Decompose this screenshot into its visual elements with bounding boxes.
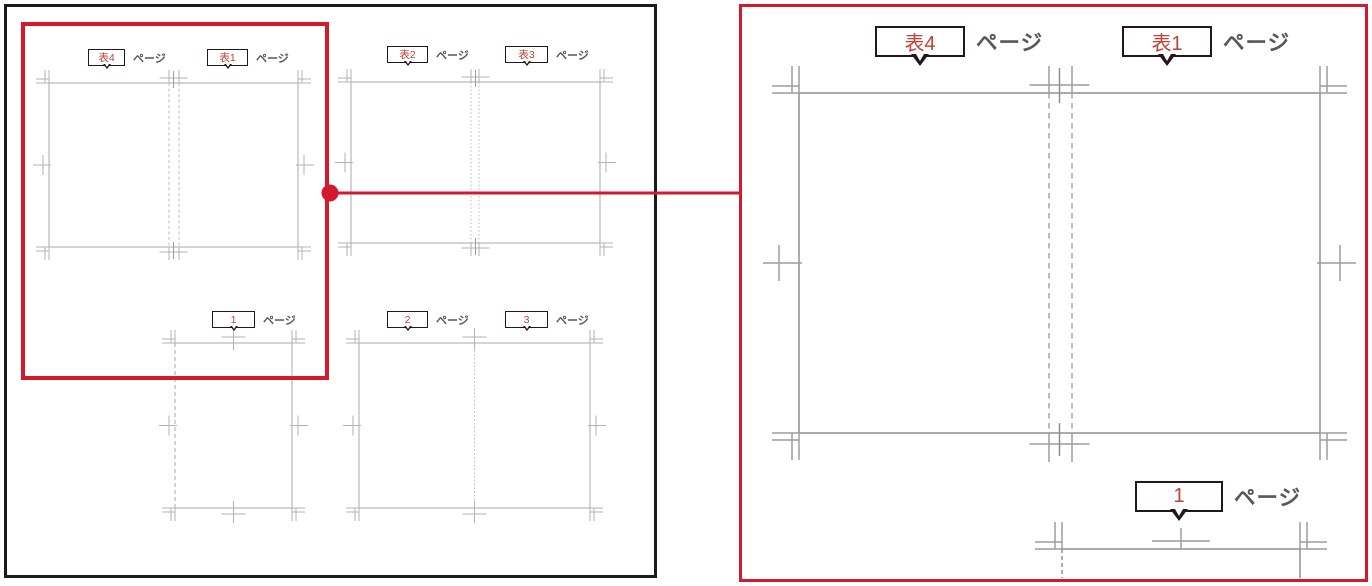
page-unit-label: ページ [133,50,166,66]
page-number-box: 1 [1135,481,1223,512]
page-number-box: 表4 [875,26,965,57]
page-number: 3 [524,314,530,326]
page-label-1: 1 ページ [212,311,296,328]
page-unit-label: ページ [976,26,1043,57]
page-unit-label: ページ [1234,481,1301,512]
overview-panel [4,4,657,578]
page-number: 1 [231,314,237,326]
page-number: 1 [1173,485,1184,508]
page-unit-label: ページ [1223,26,1290,57]
page-number: 表1 [1151,27,1182,56]
page-number: 表4 [98,50,114,65]
page-number-box: 表1 [1122,26,1212,57]
page-unit-label: ページ [556,312,589,328]
page-unit-label: ページ [263,312,296,328]
page-number: 表2 [399,47,415,62]
zoom-page-label-cover1: 表1 ページ [1122,26,1290,57]
page-number: 表4 [904,27,935,56]
zoom-page-label-cover4: 表4 ページ [875,26,1043,57]
page-number-box: 表4 [88,49,125,66]
imposition-diagram: 表4 ページ 表1 ページ 表2 ページ 表3 ページ 1 ページ 2 ページ … [0,0,1372,586]
page-unit-label: ページ [256,50,289,66]
page-number: 表1 [219,50,235,65]
page-number-box: 2 [387,311,428,328]
page-number-box: 表3 [505,46,548,63]
page-number-box: 3 [505,311,548,328]
page-unit-label: ページ [436,312,469,328]
zoom-page-label-1: 1 ページ [1135,481,1301,512]
page-number: 2 [405,314,411,326]
page-label-cover3: 表3 ページ [505,46,589,63]
page-label-2: 2 ページ [387,311,469,328]
page-label-cover1: 表1 ページ [207,49,289,66]
page-number-box: 表2 [387,46,428,63]
page-number: 表3 [518,47,534,62]
page-label-cover4: 表4 ページ [88,49,166,66]
page-label-3: 3 ページ [505,311,589,328]
page-label-cover2: 表2 ページ [387,46,469,63]
page-unit-label: ページ [556,47,589,63]
page-number-box: 1 [212,311,255,328]
page-unit-label: ページ [436,47,469,63]
page-number-box: 表1 [207,49,248,66]
